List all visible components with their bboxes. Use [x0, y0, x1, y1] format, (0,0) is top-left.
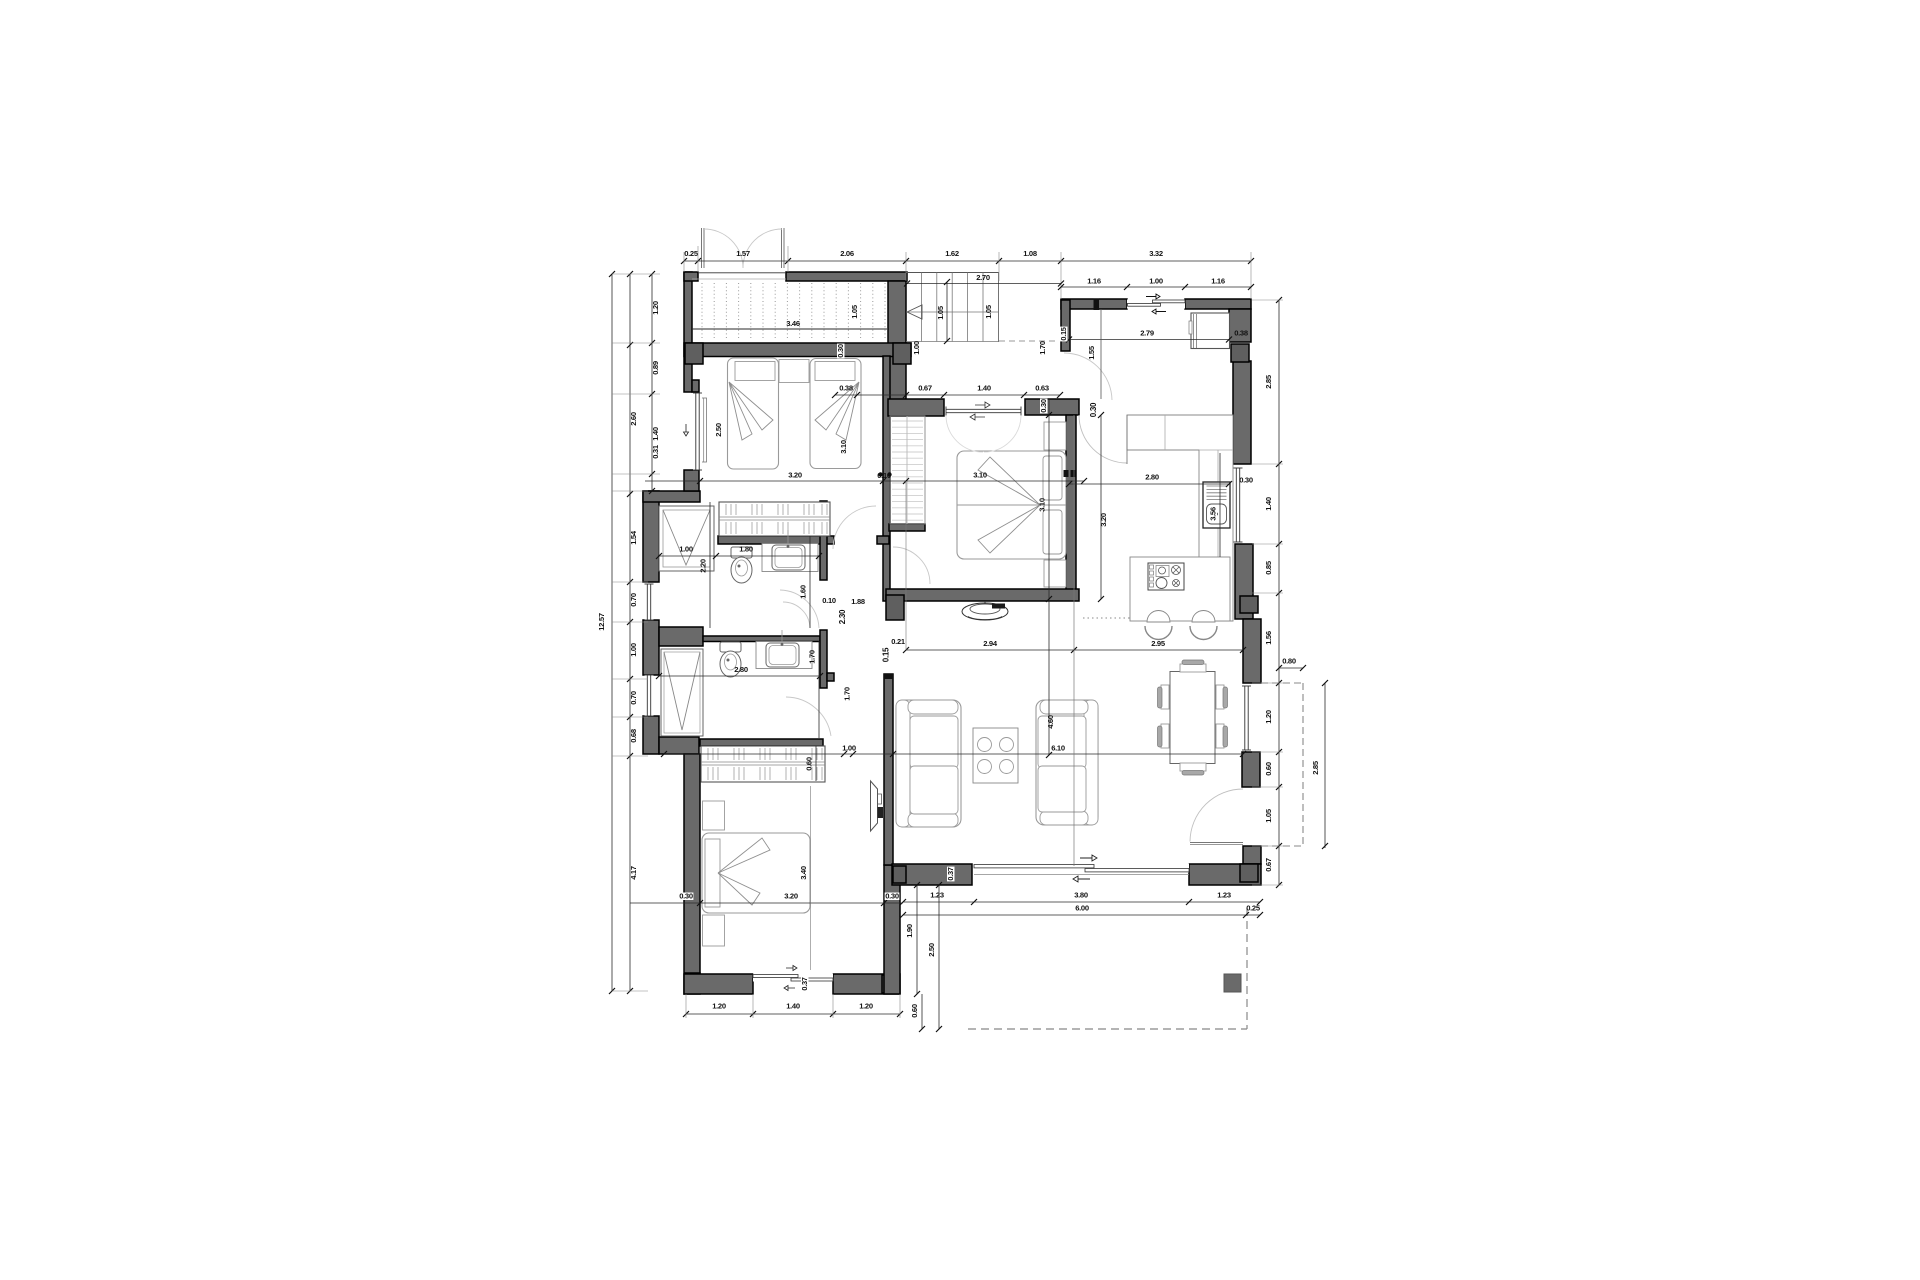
svg-text:1.88: 1.88 — [851, 597, 865, 606]
svg-text:0.80: 0.80 — [1282, 657, 1296, 666]
svg-text:1.20: 1.20 — [712, 1002, 726, 1011]
svg-text:3.56: 3.56 — [1209, 507, 1218, 521]
svg-text:0.30: 0.30 — [836, 344, 845, 358]
svg-text:6.10: 6.10 — [1051, 744, 1065, 753]
svg-text:3.80: 3.80 — [1074, 891, 1088, 900]
svg-text:3.40: 3.40 — [799, 866, 808, 880]
svg-text:0.37: 0.37 — [800, 977, 809, 990]
svg-text:0.15: 0.15 — [1059, 327, 1068, 340]
svg-text:0.10: 0.10 — [822, 596, 836, 605]
svg-text:12.57: 12.57 — [597, 613, 606, 631]
svg-text:0.60: 0.60 — [805, 757, 814, 771]
svg-text:1.40: 1.40 — [977, 384, 991, 393]
svg-text:2.50: 2.50 — [927, 943, 936, 957]
svg-text:1.20: 1.20 — [651, 301, 660, 315]
svg-text:1.54: 1.54 — [629, 530, 638, 545]
svg-text:2.60: 2.60 — [629, 412, 638, 426]
svg-text:2.80: 2.80 — [734, 665, 748, 674]
svg-text:2.94: 2.94 — [983, 639, 998, 648]
svg-text:0.15: 0.15 — [882, 647, 891, 662]
svg-text:2.80: 2.80 — [1145, 473, 1159, 482]
svg-text:1.05: 1.05 — [984, 304, 993, 319]
svg-text:1.55: 1.55 — [1087, 345, 1096, 360]
svg-text:2.79: 2.79 — [1140, 329, 1154, 338]
svg-text:0.37: 0.37 — [946, 867, 955, 880]
svg-text:0.25: 0.25 — [1246, 904, 1261, 913]
svg-text:3.20: 3.20 — [788, 471, 802, 480]
svg-text:0.30: 0.30 — [1089, 402, 1098, 417]
svg-text:0.30: 0.30 — [679, 892, 693, 901]
svg-text:2.06: 2.06 — [840, 249, 854, 258]
svg-text:0.70: 0.70 — [629, 691, 638, 705]
svg-text:1.70: 1.70 — [1038, 341, 1047, 355]
svg-text:1.40: 1.40 — [1264, 497, 1273, 511]
svg-text:3.20: 3.20 — [1099, 513, 1108, 527]
svg-text:0.60: 0.60 — [1264, 762, 1273, 776]
svg-text:2.30: 2.30 — [838, 609, 847, 624]
svg-text:3.46: 3.46 — [786, 319, 800, 328]
svg-text:3.32: 3.32 — [1149, 249, 1163, 258]
svg-text:0.25: 0.25 — [684, 249, 699, 258]
svg-text:1.00: 1.00 — [1149, 277, 1163, 286]
svg-text:1.05: 1.05 — [850, 304, 859, 319]
svg-text:2.85: 2.85 — [1264, 374, 1273, 389]
svg-text:0.89: 0.89 — [651, 361, 660, 375]
svg-text:2.95: 2.95 — [1151, 639, 1166, 648]
svg-text:0.30: 0.30 — [885, 892, 899, 901]
svg-text:1.20: 1.20 — [1264, 710, 1273, 724]
svg-text:1.23: 1.23 — [1217, 891, 1231, 900]
svg-text:2.85: 2.85 — [1311, 760, 1320, 775]
svg-text:0.21: 0.21 — [891, 637, 905, 646]
svg-text:0.68: 0.68 — [629, 729, 638, 743]
svg-text:1.70: 1.70 — [808, 650, 817, 664]
svg-text:0.10: 0.10 — [877, 471, 891, 480]
svg-text:2.50: 2.50 — [714, 423, 723, 437]
svg-text:1.08: 1.08 — [1023, 249, 1037, 258]
svg-text:1.23: 1.23 — [930, 891, 944, 900]
svg-text:0.31: 0.31 — [651, 444, 660, 459]
svg-text:1.40: 1.40 — [786, 1002, 800, 1011]
svg-text:1.56: 1.56 — [1264, 631, 1273, 645]
svg-text:0.60: 0.60 — [910, 1004, 919, 1018]
svg-text:1.90: 1.90 — [905, 924, 914, 938]
svg-text:3.10: 3.10 — [973, 471, 987, 480]
svg-text:1.60: 1.60 — [799, 585, 808, 599]
svg-text:3.10: 3.10 — [1038, 498, 1047, 512]
svg-text:1.57: 1.57 — [736, 249, 750, 258]
svg-text:0.38: 0.38 — [839, 384, 853, 393]
svg-text:1.40: 1.40 — [651, 427, 660, 441]
svg-text:3.10: 3.10 — [839, 440, 848, 454]
svg-text:1.00: 1.00 — [679, 545, 693, 554]
svg-text:1.05: 1.05 — [1264, 808, 1273, 823]
svg-text:4.17: 4.17 — [629, 866, 638, 880]
svg-text:0.67: 0.67 — [918, 384, 932, 393]
svg-text:1.16: 1.16 — [1211, 277, 1225, 286]
svg-text:0.30: 0.30 — [1239, 476, 1253, 485]
svg-text:0.85: 0.85 — [1264, 560, 1273, 575]
svg-text:1.00: 1.00 — [629, 643, 638, 657]
svg-text:6.00: 6.00 — [1075, 904, 1089, 913]
svg-text:1.20: 1.20 — [859, 1002, 873, 1011]
svg-text:3.20: 3.20 — [784, 892, 798, 901]
svg-text:2.70: 2.70 — [976, 273, 990, 282]
svg-text:4.60: 4.60 — [1046, 715, 1055, 729]
svg-text:1.00: 1.00 — [912, 341, 921, 355]
svg-text:0.70: 0.70 — [629, 593, 638, 607]
svg-text:1.00: 1.00 — [842, 744, 856, 753]
svg-text:1.80: 1.80 — [739, 545, 753, 554]
svg-text:1.70: 1.70 — [843, 687, 852, 701]
svg-text:0.30: 0.30 — [1039, 399, 1048, 413]
svg-text:1.62: 1.62 — [945, 249, 959, 258]
svg-text:0.67: 0.67 — [1264, 858, 1273, 872]
svg-text:2.20: 2.20 — [699, 559, 708, 573]
svg-text:1.16: 1.16 — [1087, 277, 1101, 286]
svg-text:1.05: 1.05 — [936, 305, 945, 320]
svg-text:0.63: 0.63 — [1035, 384, 1049, 393]
svg-text:0.38: 0.38 — [1234, 329, 1248, 338]
